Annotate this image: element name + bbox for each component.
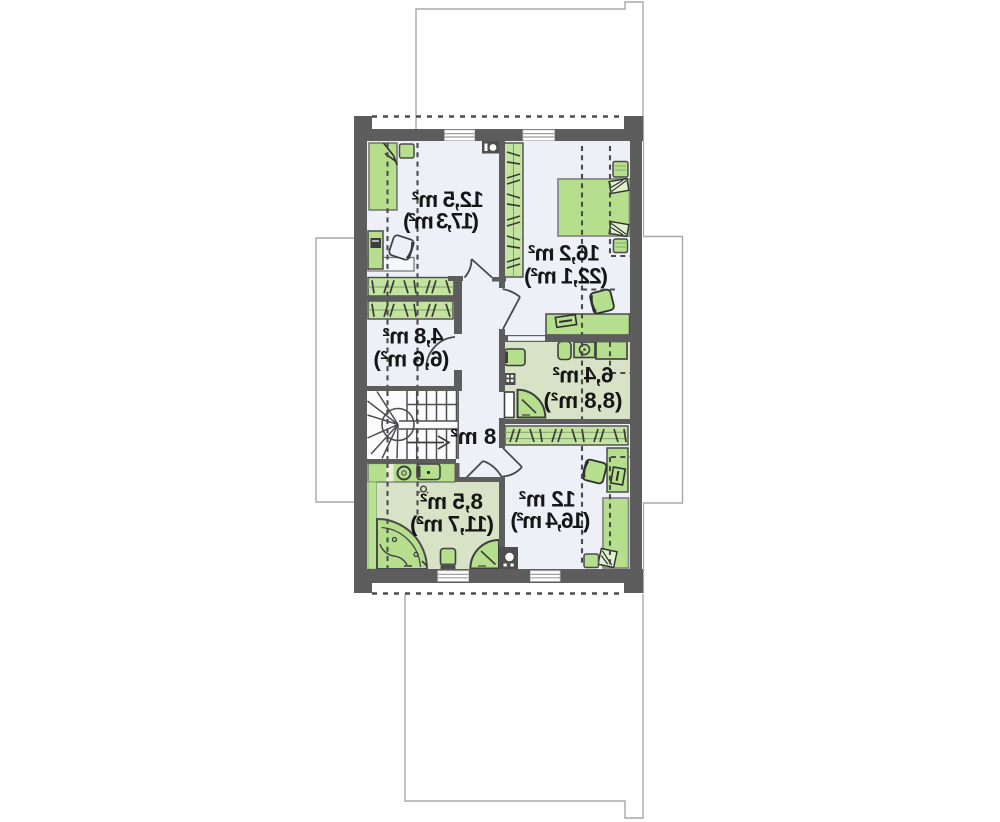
svg-text:(16,4 m²): (16,4 m²) xyxy=(510,508,590,533)
svg-text:(11,7 m²): (11,7 m²) xyxy=(410,512,494,537)
svg-text:8 m²: 8 m² xyxy=(450,424,497,449)
svg-text:(6,6 m²): (6,6 m²) xyxy=(373,347,449,372)
svg-text:(17,3 m²): (17,3 m²) xyxy=(403,209,479,234)
svg-text:(8,8 m²): (8,8 m²) xyxy=(544,388,623,413)
svg-text:(22,1 m²): (22,1 m²) xyxy=(524,264,608,289)
svg-text:4,8 m²: 4,8 m² xyxy=(382,323,444,348)
svg-text:6,4 m²: 6,4 m² xyxy=(552,363,614,388)
svg-text:8,5 m²: 8,5 m² xyxy=(420,489,484,514)
svg-text:16,2 m²: 16,2 m² xyxy=(528,241,601,266)
